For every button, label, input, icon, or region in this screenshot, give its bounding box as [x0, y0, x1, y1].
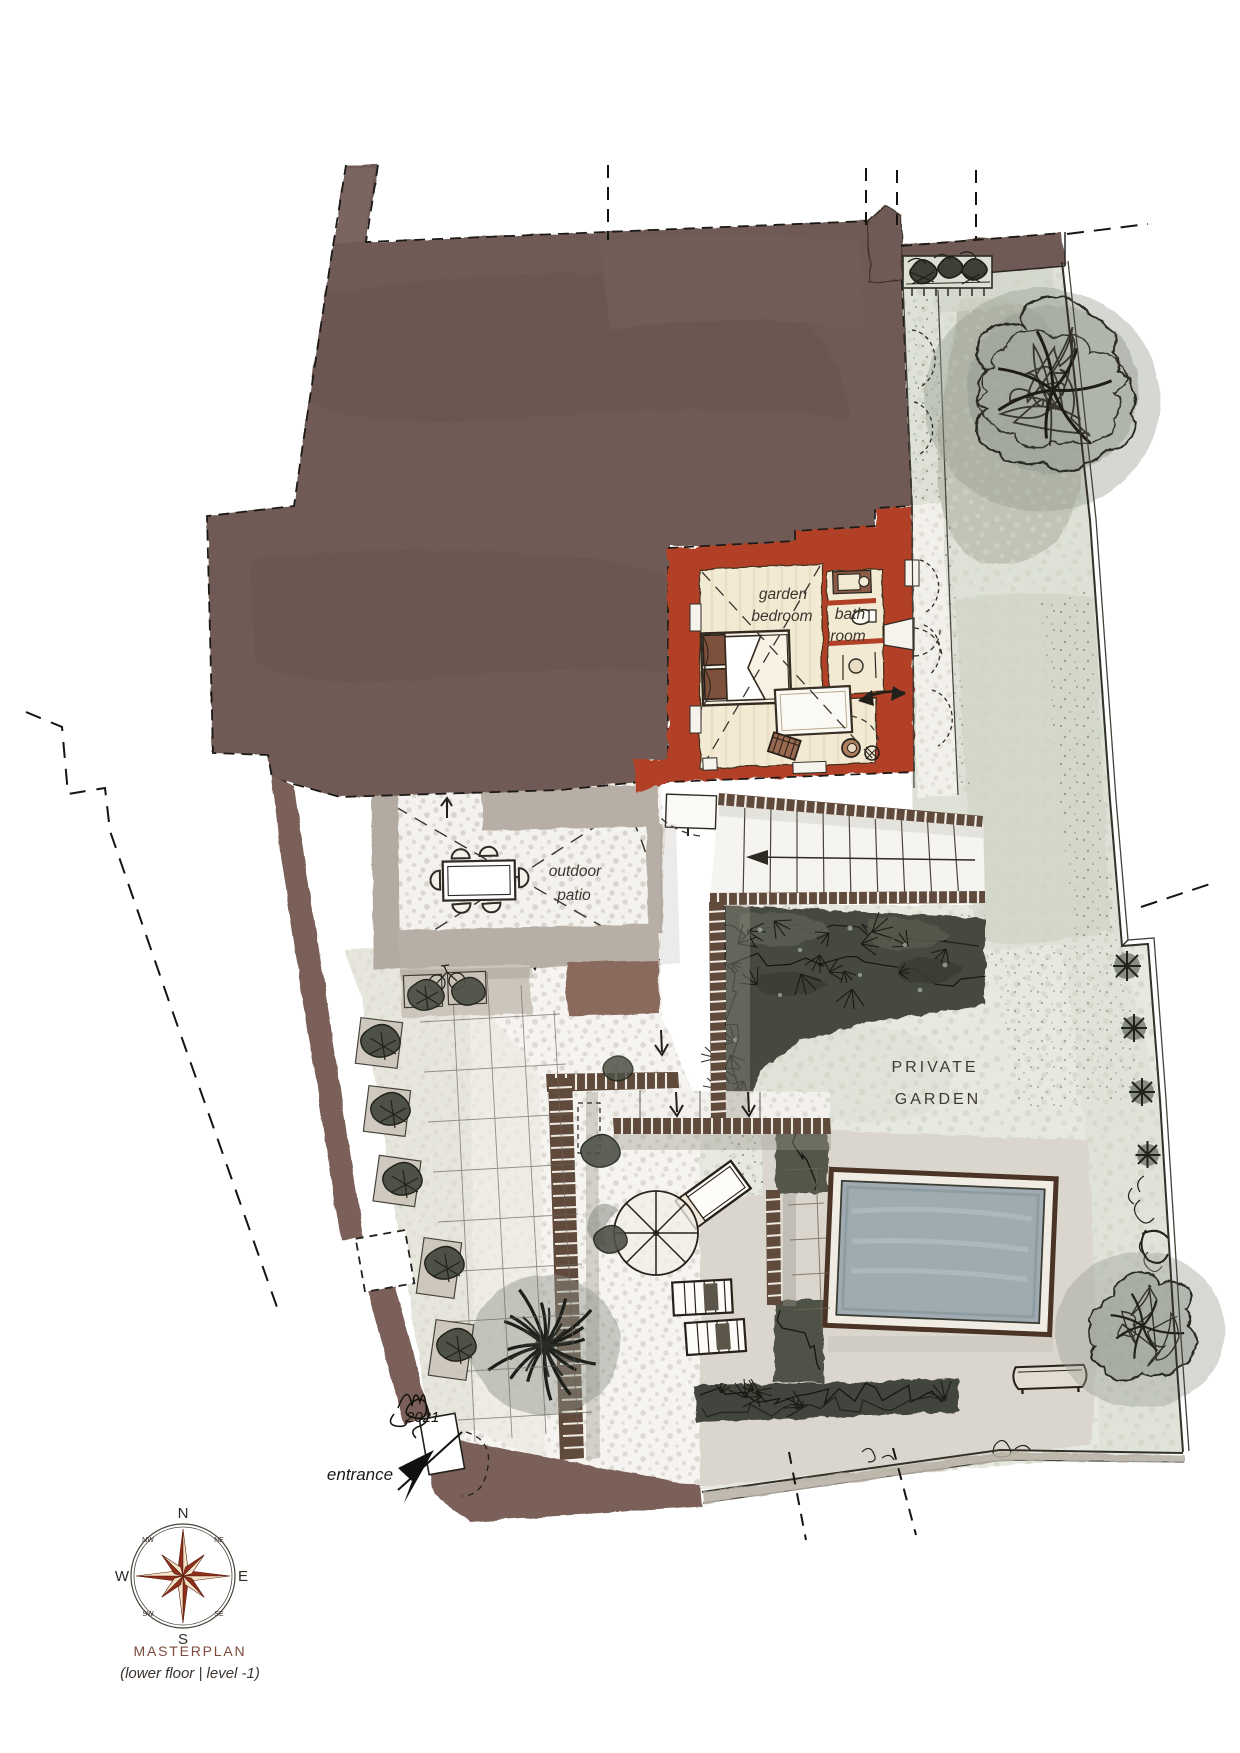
svg-text:SW: SW [142, 1611, 154, 1618]
svg-text:W: W [115, 1568, 130, 1585]
svg-text:(lower floor | level -1): (lower floor | level -1) [120, 1665, 260, 1682]
svg-text:patio: patio [556, 887, 591, 904]
svg-text:room: room [830, 628, 865, 645]
svg-text:bedroom: bedroom [751, 608, 812, 625]
svg-text:SE: SE [214, 1611, 224, 1618]
svg-text:entrance: entrance [327, 1465, 393, 1484]
svg-text:outdoor: outdoor [549, 863, 602, 880]
svg-text:MASTERPLAN: MASTERPLAN [134, 1643, 247, 1659]
svg-text:NW: NW [142, 1537, 154, 1544]
svg-text:PRIVATE: PRIVATE [891, 1059, 978, 1076]
svg-text:E: E [238, 1568, 248, 1585]
svg-text:garden: garden [759, 586, 807, 603]
svg-text:NE: NE [214, 1537, 224, 1544]
svg-text:GARDEN: GARDEN [895, 1091, 981, 1108]
svg-text:bath: bath [835, 606, 865, 623]
svg-text:2021: 2021 [405, 1409, 439, 1426]
svg-text:N: N [178, 1505, 189, 1522]
